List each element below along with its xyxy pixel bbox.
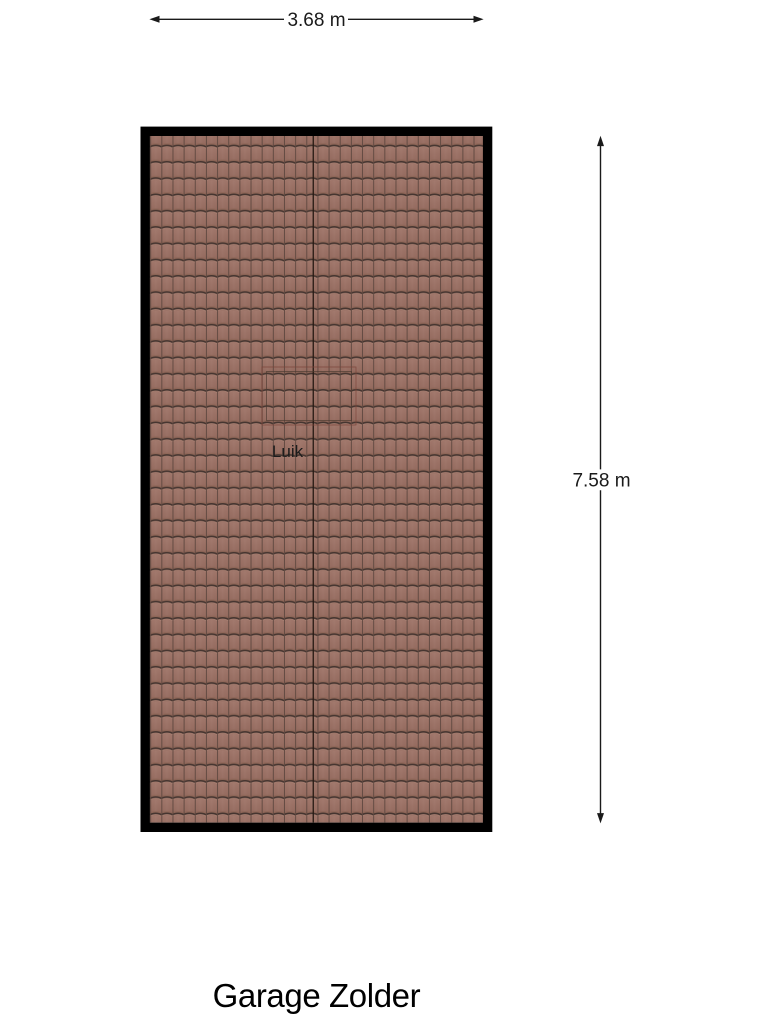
svg-text:3.68 m: 3.68 m	[287, 10, 345, 31]
svg-text:Luik: Luik	[272, 442, 304, 461]
svg-text:Garage Zolder: Garage Zolder	[213, 977, 421, 1014]
svg-text:7.58 m: 7.58 m	[572, 471, 630, 492]
